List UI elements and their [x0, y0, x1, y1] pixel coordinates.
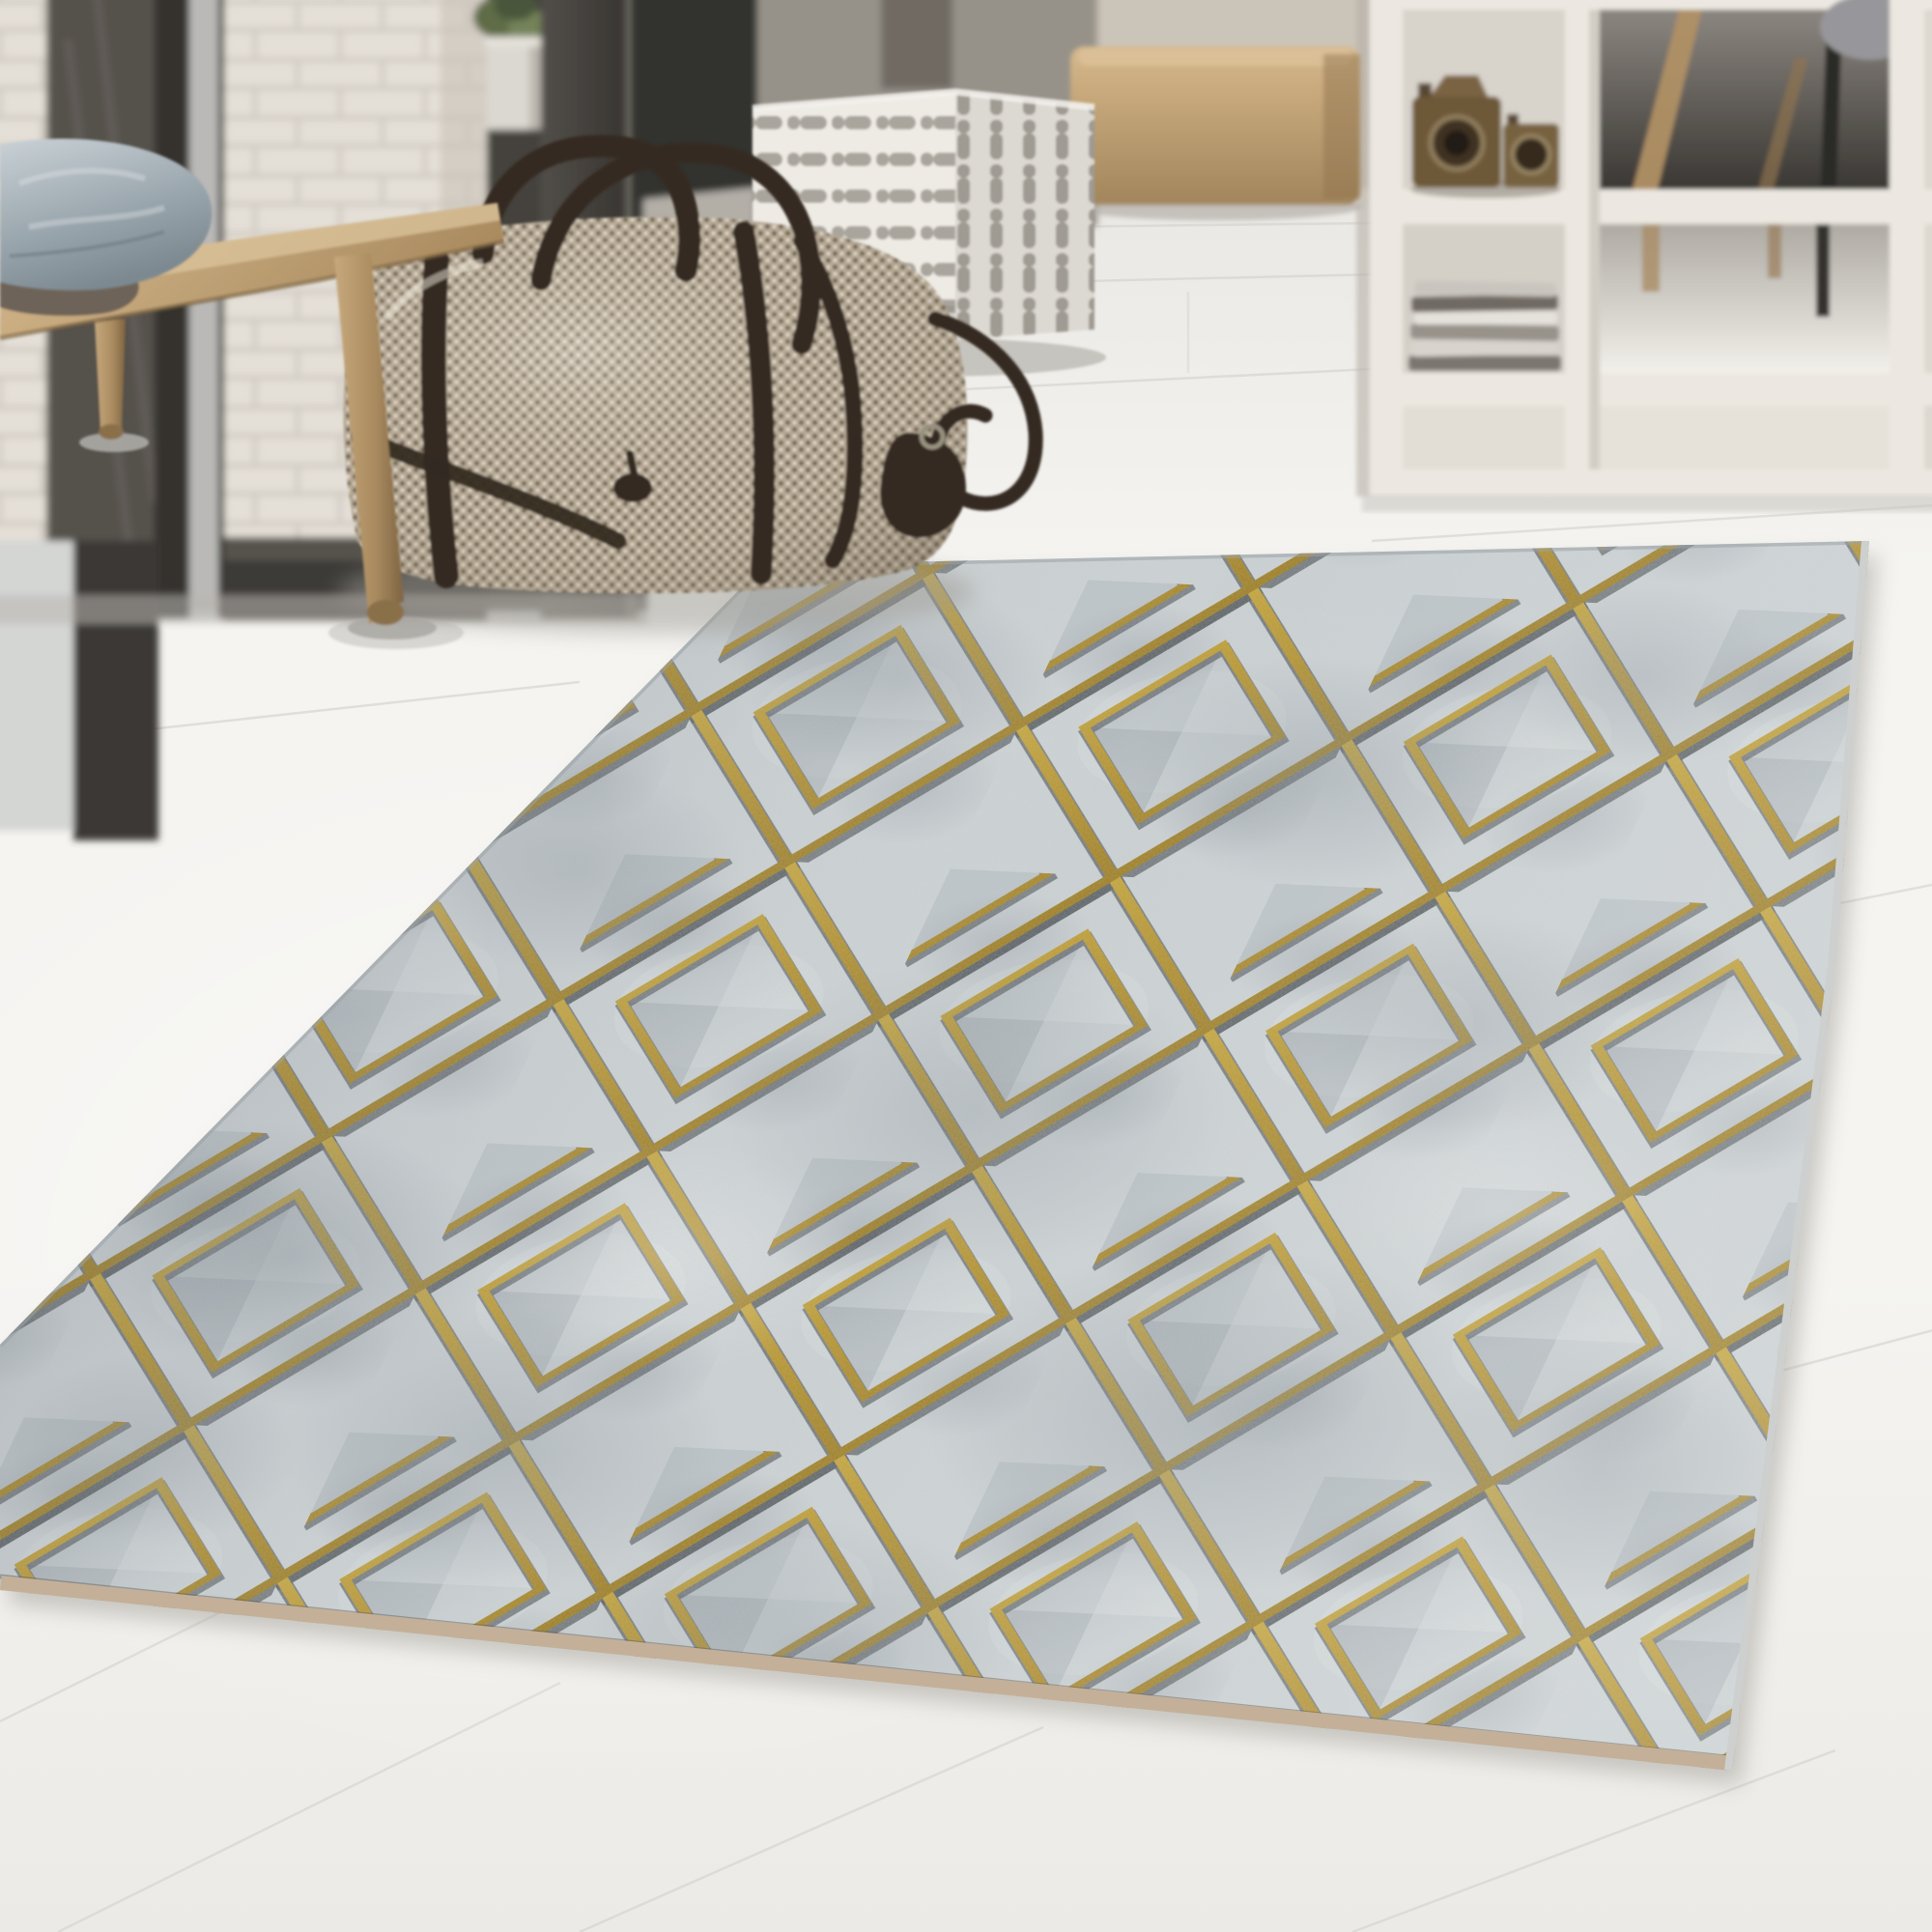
magazine-stack — [1408, 281, 1561, 371]
glass-bright-sliver — [189, 0, 218, 618]
shelf-shelfboard-2 — [1370, 373, 1932, 406]
shelf-compartment-empty-right — [1600, 406, 1889, 469]
chair-leg-lower — [1642, 224, 1660, 292]
photo-canvas — [0, 0, 1932, 1932]
tan-pouf-top-edge — [1078, 48, 1352, 66]
tan-pouf — [1068, 46, 1362, 220]
shelf-mullion-right — [1889, 0, 1924, 497]
shelf-compartment-empty-left — [1403, 406, 1565, 469]
toy-camera-small — [1503, 114, 1559, 187]
shelf-mullion-shade — [1589, 10, 1600, 469]
bench-front-leg-tip — [367, 600, 404, 625]
lower-frame — [73, 541, 158, 840]
shelf-bottom-frame — [1370, 469, 1932, 497]
lower-glass-pane — [0, 541, 73, 831]
shelf-mullion-left — [1370, 0, 1403, 497]
chair-leg-lower-2 — [1768, 224, 1781, 278]
wall-dark-column — [881, 0, 952, 89]
planter — [485, 37, 545, 129]
cube-shelf — [1356, 0, 1932, 497]
living-room-photo — [0, 0, 1932, 1932]
shelf-floor-shadow — [1362, 495, 1932, 512]
striped-pouf-side-shade — [955, 92, 1094, 340]
tan-pouf-side-shade — [1323, 54, 1360, 199]
dark-pole-lower — [1816, 224, 1830, 317]
bag-strap-front-left — [434, 259, 446, 576]
tan-pouf-body — [1070, 46, 1360, 205]
bench-rear-leg-tip — [99, 424, 124, 440]
